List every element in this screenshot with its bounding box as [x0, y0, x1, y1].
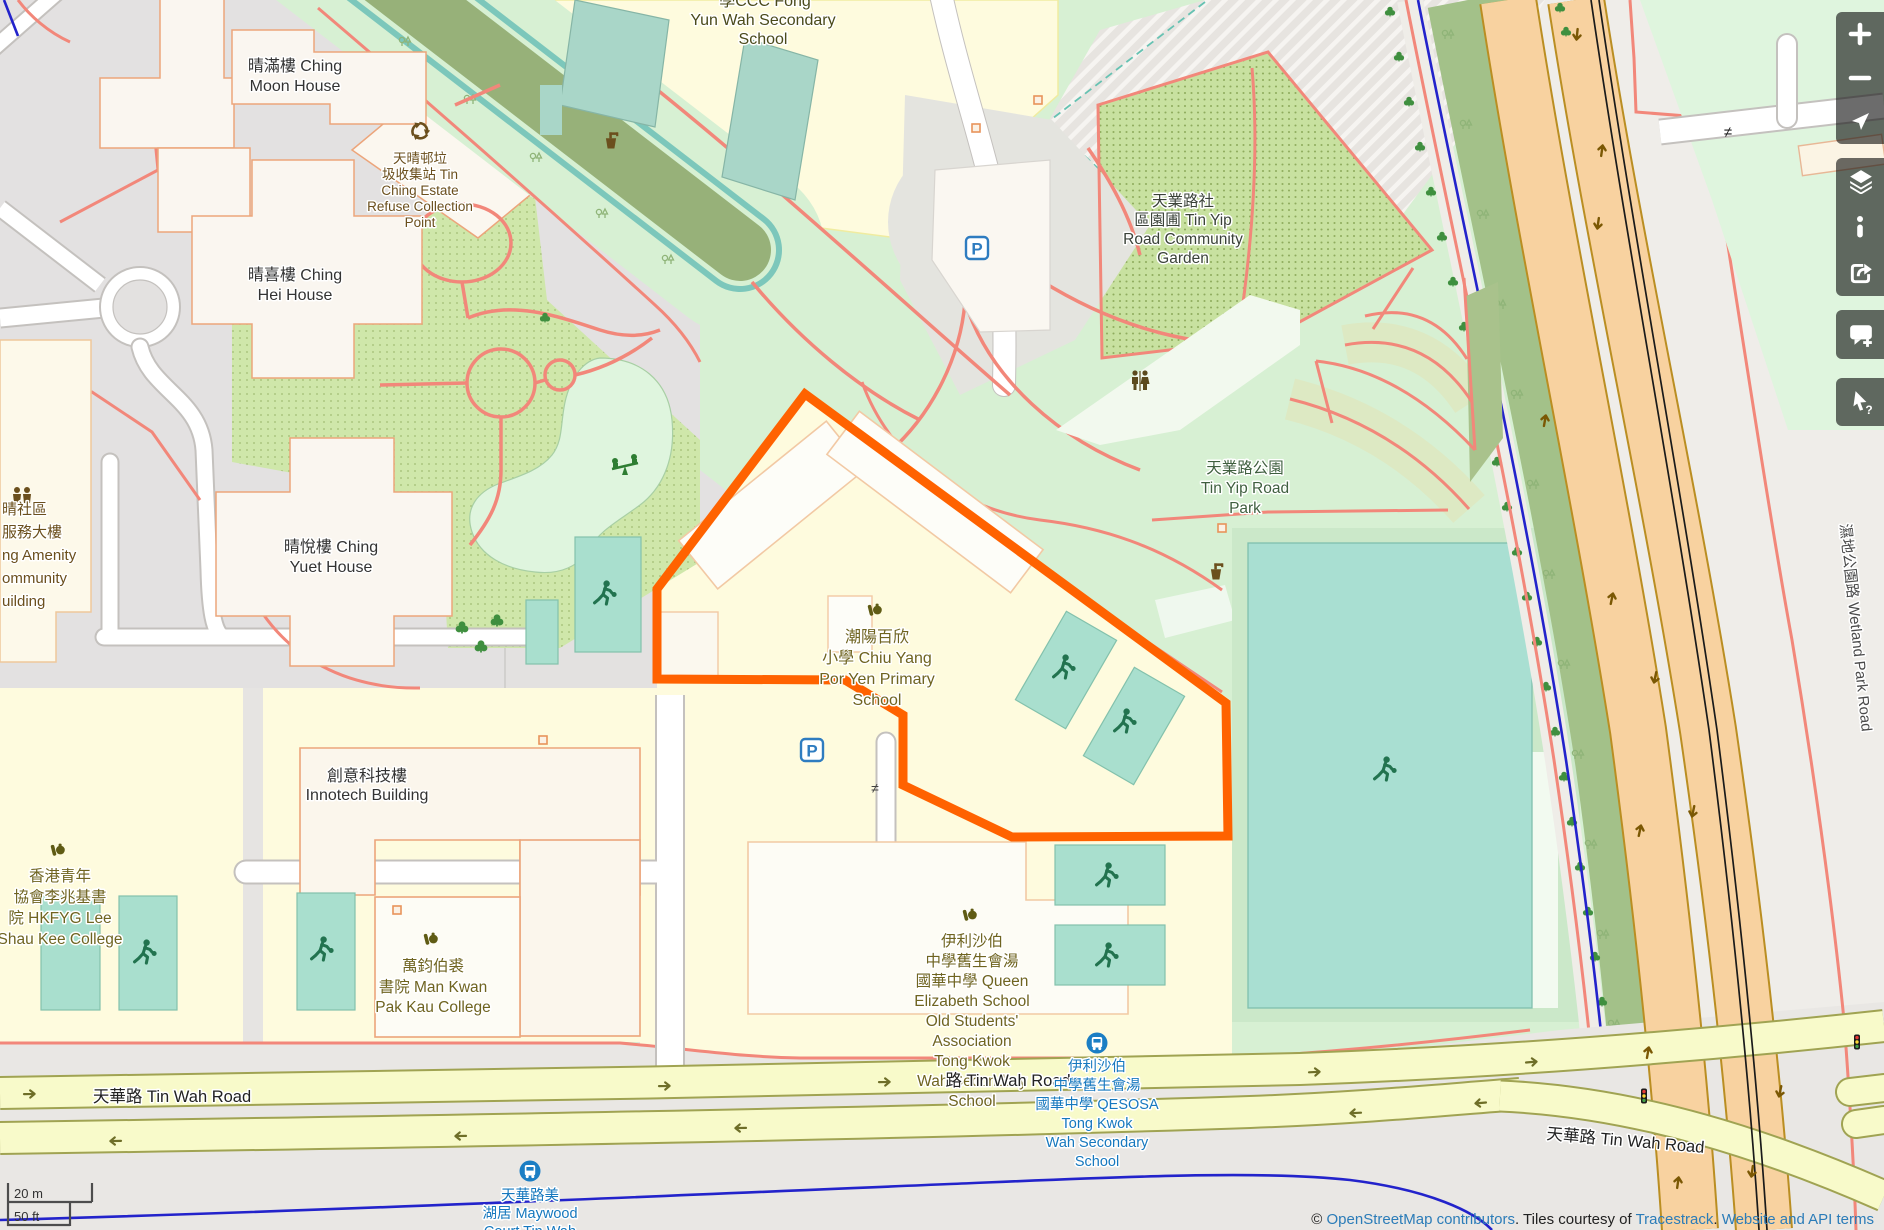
svg-text:天華路 Tin Wah Road: 天華路 Tin Wah Road — [93, 1087, 251, 1106]
svg-text:?: ? — [1865, 403, 1872, 415]
svg-text:Yun Wah Secondary: Yun Wah Secondary — [690, 12, 835, 29]
svg-text:中學舊生會湯: 中學舊生會湯 — [1054, 1076, 1141, 1094]
svg-text:晴悅樓 Ching: 晴悅樓 Ching — [284, 538, 378, 556]
svg-text:晴滿樓 Ching: 晴滿樓 Ching — [248, 57, 342, 75]
svg-text:ng Amenity: ng Amenity — [2, 547, 77, 564]
svg-text:院 HKFYG Lee: 院 HKFYG Lee — [8, 908, 111, 927]
svg-text:© OpenStreetMap contributors.: © OpenStreetMap contributors. Tiles cour… — [1311, 1211, 1874, 1228]
svg-text:伊利沙伯: 伊利沙伯 — [1068, 1058, 1126, 1075]
svg-text:Elizabeth School: Elizabeth School — [914, 993, 1029, 1010]
svg-text:Moon House: Moon House — [250, 78, 341, 95]
svg-text:國華中學 QESOSA: 國華中學 QESOSA — [1035, 1095, 1159, 1113]
svg-text:Pak Kau College: Pak Kau College — [375, 999, 490, 1016]
svg-text:P: P — [971, 240, 982, 259]
svg-text:School: School — [948, 1093, 995, 1110]
svg-text:20 m: 20 m — [14, 1186, 43, 1201]
svg-text:ommunity: ommunity — [2, 570, 68, 587]
svg-text:Ching Estate: Ching Estate — [381, 183, 458, 198]
svg-text:潮陽百欣: 潮陽百欣 — [845, 628, 909, 646]
svg-text:路 Tin Wah Road: 路 Tin Wah Road — [945, 1071, 1070, 1090]
svg-text:Por Yen Primary: Por Yen Primary — [819, 671, 935, 688]
svg-text:Tong Kwok: Tong Kwok — [934, 1053, 1010, 1070]
svg-text:創意科技樓: 創意科技樓 — [327, 766, 407, 785]
svg-text:Court Tin Wah: Court Tin Wah — [484, 1224, 576, 1230]
svg-text:Point: Point — [405, 215, 436, 230]
svg-text:Innotech Building: Innotech Building — [306, 787, 429, 804]
svg-text:伊利沙伯: 伊利沙伯 — [941, 932, 1003, 950]
svg-text:晴喜樓 Ching: 晴喜樓 Ching — [248, 266, 342, 284]
svg-text:Refuse Collection: Refuse Collection — [367, 199, 473, 214]
svg-text:Wah Secondary: Wah Secondary — [1046, 1135, 1149, 1151]
svg-text:湖居 Maywood: 湖居 Maywood — [482, 1205, 577, 1222]
svg-text:uilding: uilding — [2, 593, 45, 610]
svg-text:Shau Kee College: Shau Kee College — [0, 931, 122, 948]
svg-text:小學 Chiu Yang: 小學 Chiu Yang — [822, 649, 932, 667]
svg-text:≠: ≠ — [1724, 124, 1732, 141]
svg-text:天華路美: 天華路美 — [501, 1187, 559, 1204]
svg-text:協會李兆基書: 協會李兆基書 — [13, 888, 106, 906]
svg-text:School: School — [1075, 1154, 1119, 1170]
svg-text:50 ft: 50 ft — [14, 1209, 40, 1224]
svg-text:區園圃 Tin Yip: 區園圃 Tin Yip — [1134, 212, 1232, 229]
svg-text:Garden: Garden — [1157, 250, 1209, 267]
svg-text:服務大樓: 服務大樓 — [2, 524, 62, 541]
svg-text:Tong Kwok: Tong Kwok — [1062, 1116, 1134, 1132]
svg-text:香港青年: 香港青年 — [29, 867, 91, 885]
svg-text:晴社區: 晴社區 — [2, 501, 47, 518]
svg-text:Association: Association — [932, 1033, 1011, 1050]
svg-text:≠: ≠ — [871, 780, 879, 796]
svg-text:School: School — [853, 692, 902, 709]
svg-text:圾收集站 Tin: 圾收集站 Tin — [382, 167, 458, 182]
svg-text:Hei House: Hei House — [258, 287, 333, 304]
svg-text:School: School — [739, 31, 788, 48]
svg-text:Yuet House: Yuet House — [290, 559, 373, 576]
svg-text:Park: Park — [1229, 500, 1261, 517]
svg-text:國華中學 Queen: 國華中學 Queen — [916, 971, 1029, 990]
svg-text:P: P — [806, 742, 817, 761]
svg-text:學CCC Fong: 學CCC Fong — [719, 0, 811, 10]
svg-text:天晴邨垃: 天晴邨垃 — [393, 151, 447, 166]
svg-text:書院 Man Kwan: 書院 Man Kwan — [379, 977, 488, 996]
svg-text:Tin Yip Road: Tin Yip Road — [1201, 480, 1289, 497]
svg-text:天業路社: 天業路社 — [1152, 192, 1214, 210]
svg-text:Road Community: Road Community — [1123, 231, 1243, 248]
svg-text:Old Students': Old Students' — [926, 1013, 1019, 1030]
svg-text:中學舊生會湯: 中學舊生會湯 — [925, 951, 1018, 970]
svg-text:萬鈞伯裘: 萬鈞伯裘 — [402, 957, 464, 975]
svg-text:天業路公園: 天業路公園 — [1206, 459, 1284, 477]
